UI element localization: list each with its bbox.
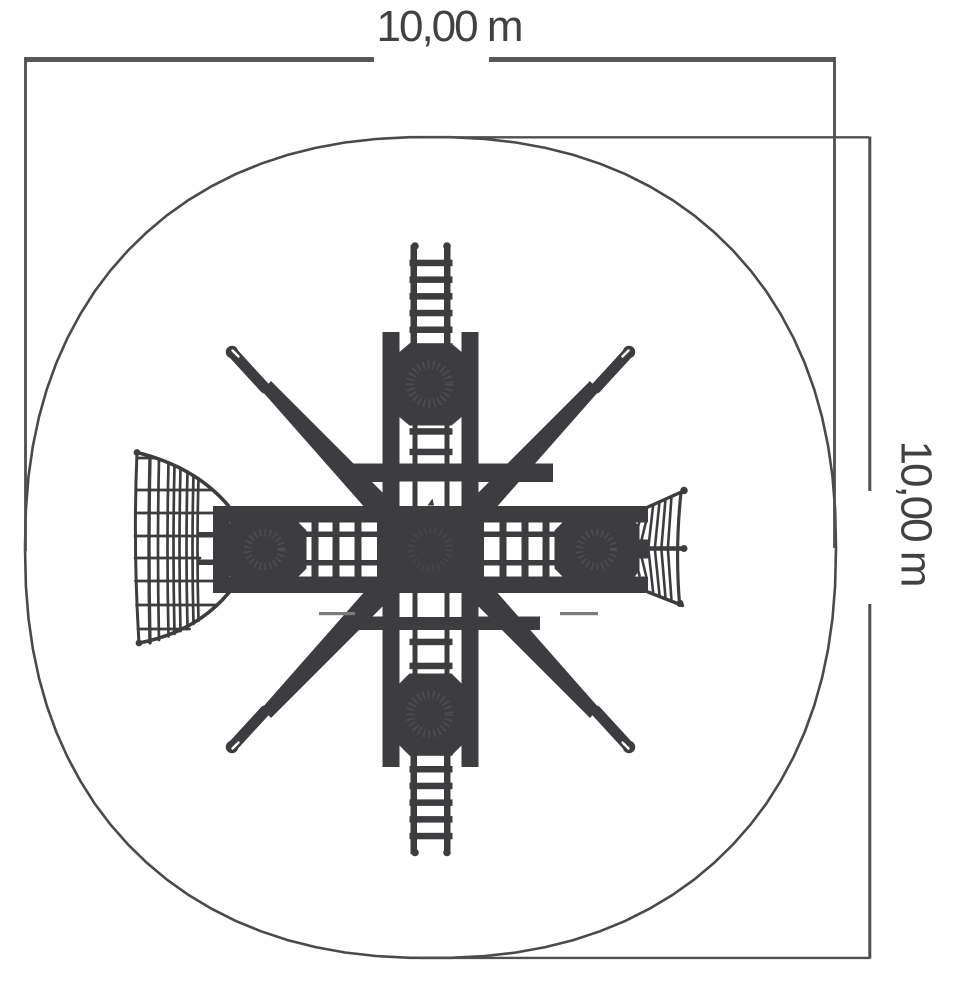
svg-text:10,00 m: 10,00 m [377, 2, 522, 51]
svg-text:10,00 m: 10,00 m [892, 441, 941, 586]
